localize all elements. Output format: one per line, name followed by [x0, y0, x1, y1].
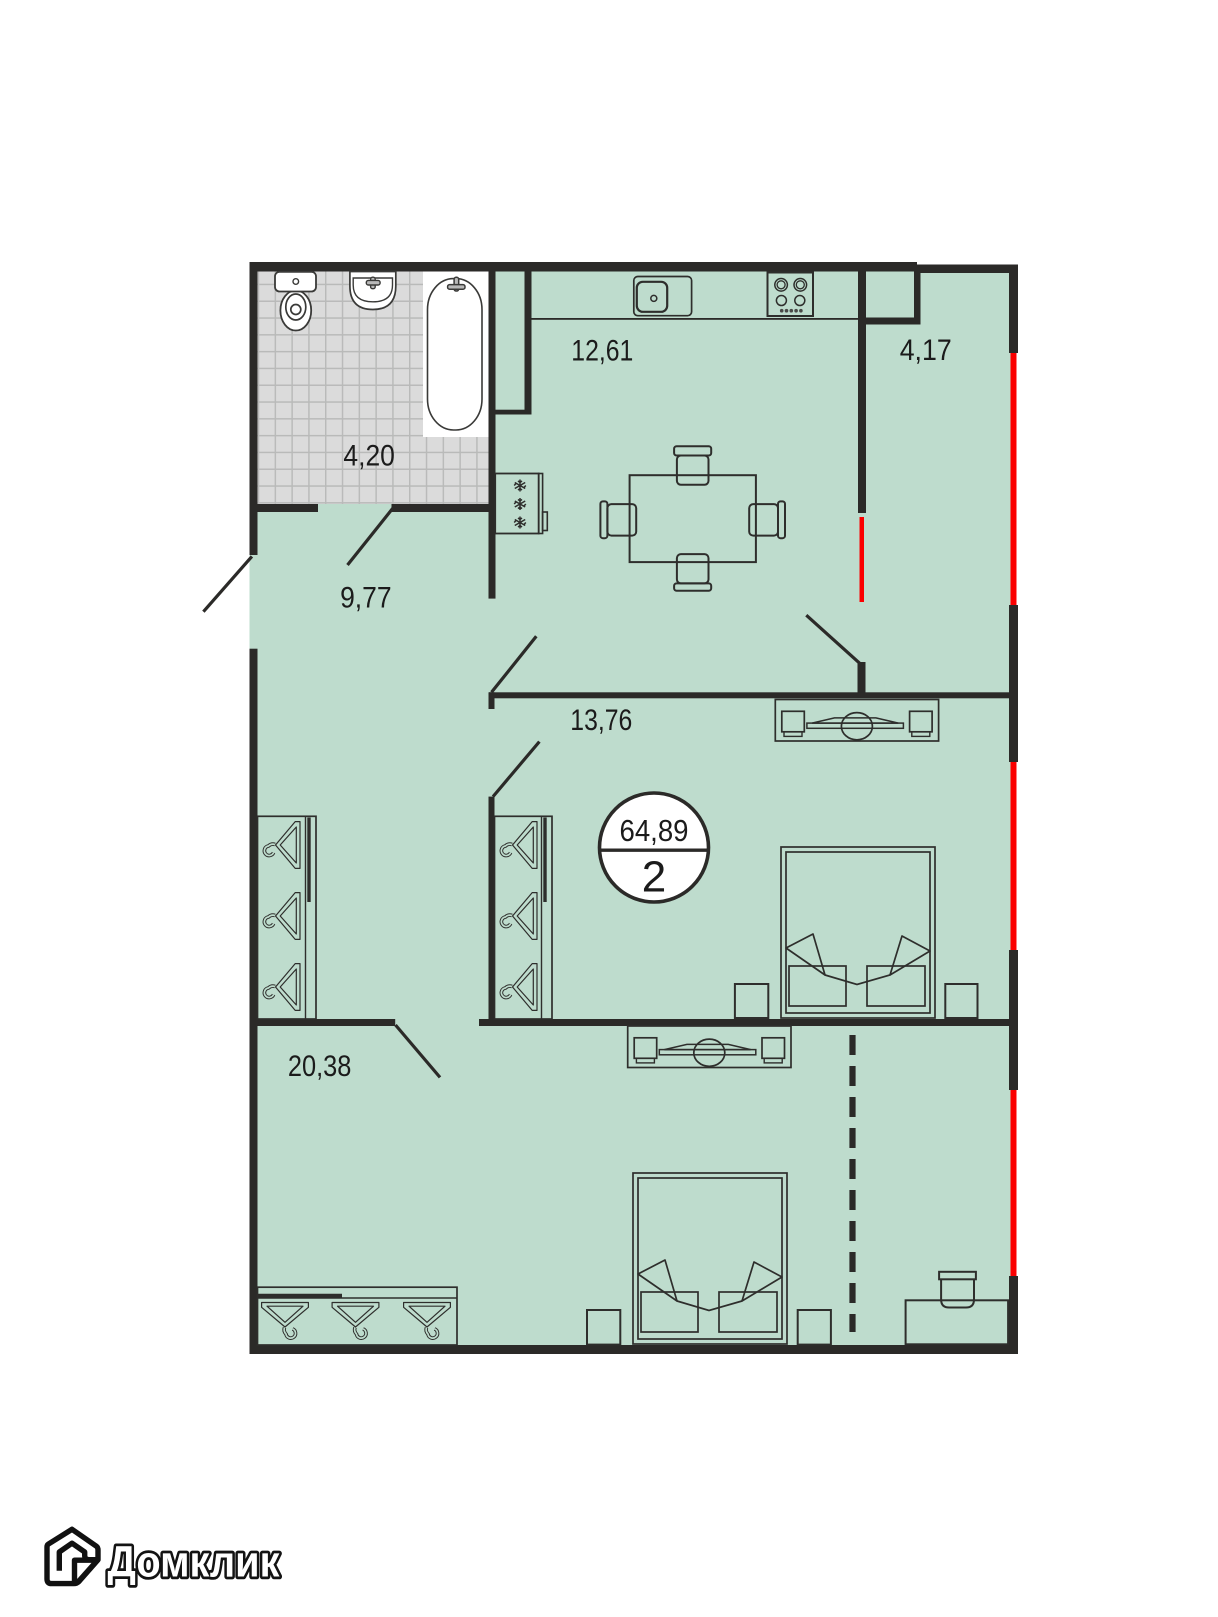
- svg-text:64,89: 64,89: [620, 814, 689, 848]
- svg-text:9,77: 9,77: [340, 582, 392, 615]
- svg-text:20,38: 20,38: [288, 1050, 352, 1083]
- svg-text:13,76: 13,76: [570, 704, 632, 737]
- svg-text:4,20: 4,20: [343, 440, 395, 473]
- svg-text:12,61: 12,61: [571, 335, 633, 368]
- svg-text:4,17: 4,17: [900, 334, 952, 367]
- svg-text:2: 2: [642, 853, 667, 902]
- svg-text:Домклик: Домклик: [108, 1538, 281, 1587]
